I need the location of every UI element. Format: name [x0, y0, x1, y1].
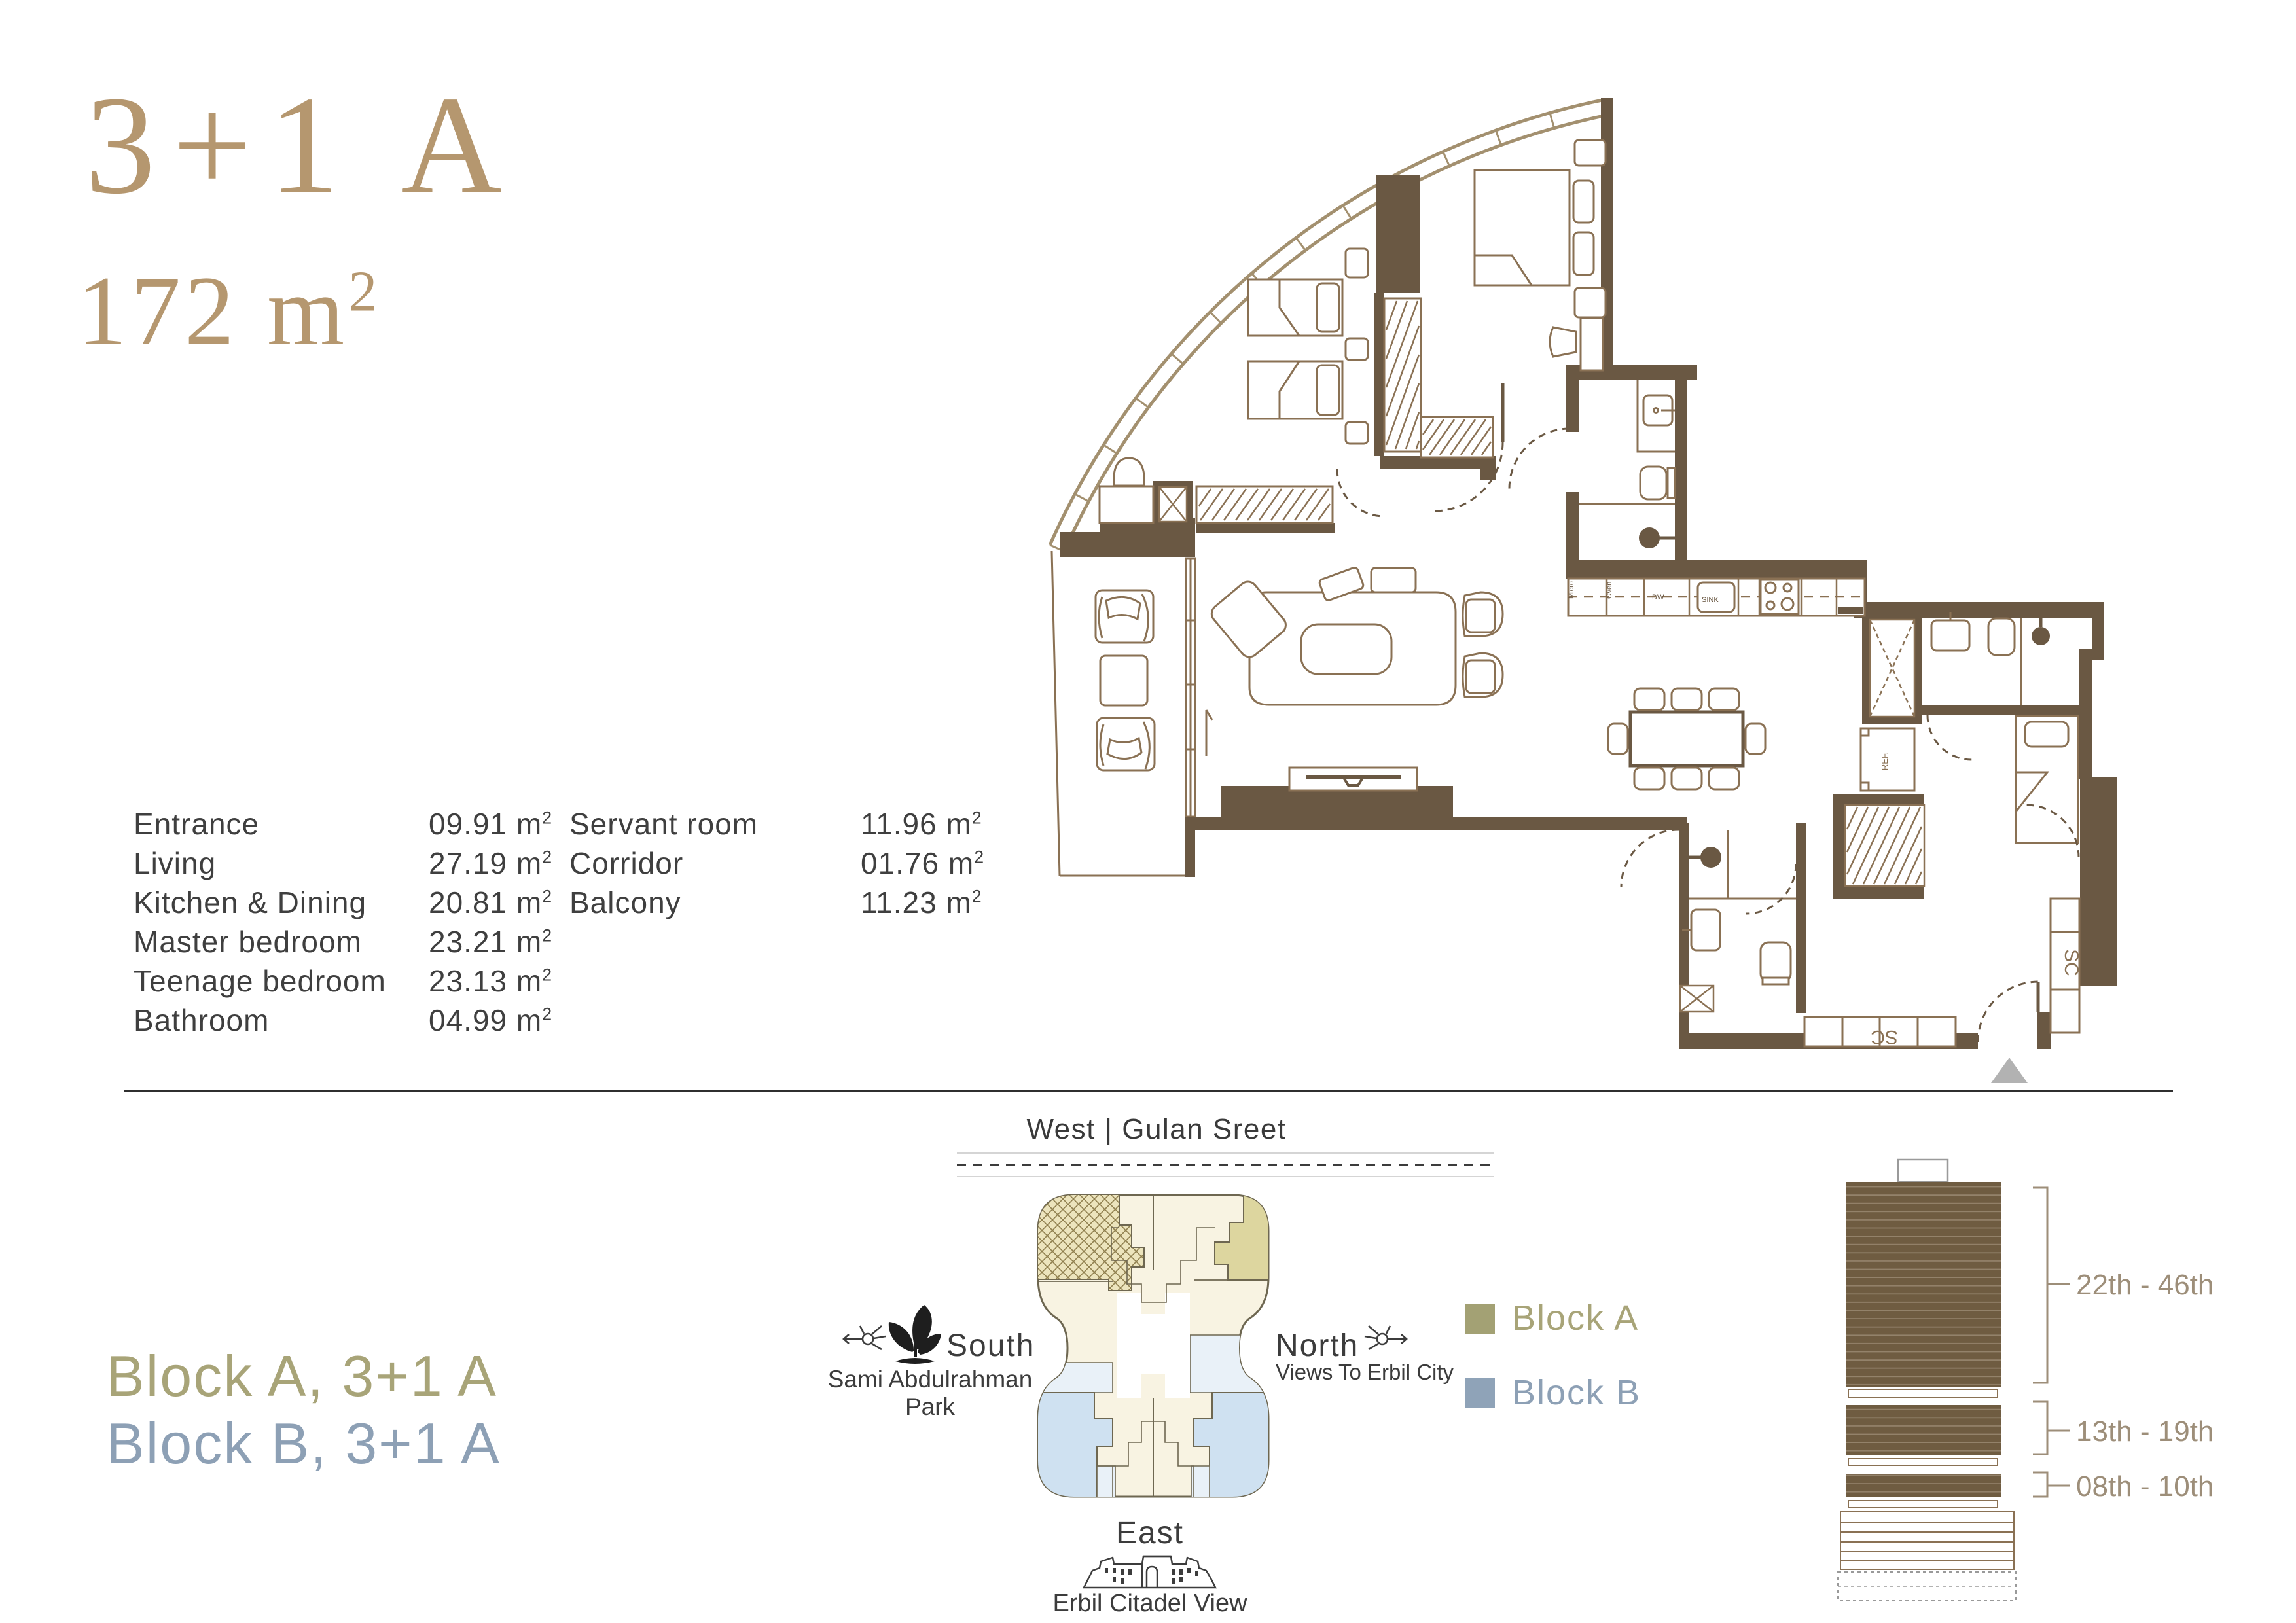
svg-text:Micro: Micro: [1568, 581, 1575, 599]
svg-text:Park: Park: [905, 1393, 956, 1420]
svg-text:West | Gulan Sreet: West | Gulan Sreet: [1026, 1113, 1286, 1145]
svg-text:Views To Erbil City: Views To Erbil City: [1276, 1360, 1454, 1384]
svg-text:Sami Abdulrahman: Sami Abdulrahman: [828, 1366, 1033, 1393]
svg-text:South: South: [946, 1329, 1035, 1363]
svg-text:Erbil Citadel View: Erbil Citadel View: [1052, 1590, 1247, 1617]
svg-text:13th - 19th: 13th - 19th: [2076, 1416, 2214, 1448]
svg-text:08th - 10th: 08th - 10th: [2076, 1471, 2214, 1503]
svg-text:22th - 46th: 22th - 46th: [2076, 1269, 2214, 1301]
svg-text:SC: SC: [1871, 1026, 1898, 1048]
svg-text:SC: SC: [2060, 949, 2082, 976]
svg-text:DW: DW: [1652, 594, 1664, 601]
svg-text:Block A: Block A: [1512, 1298, 1639, 1338]
svg-text:East: East: [1116, 1516, 1184, 1550]
svg-text:Block B: Block B: [1512, 1373, 1641, 1412]
svg-text:Oven: Oven: [1605, 582, 1613, 599]
svg-text:REF.: REF.: [1880, 752, 1890, 770]
svg-text:North: North: [1276, 1329, 1359, 1363]
svg-text:SINK: SINK: [1702, 596, 1719, 604]
